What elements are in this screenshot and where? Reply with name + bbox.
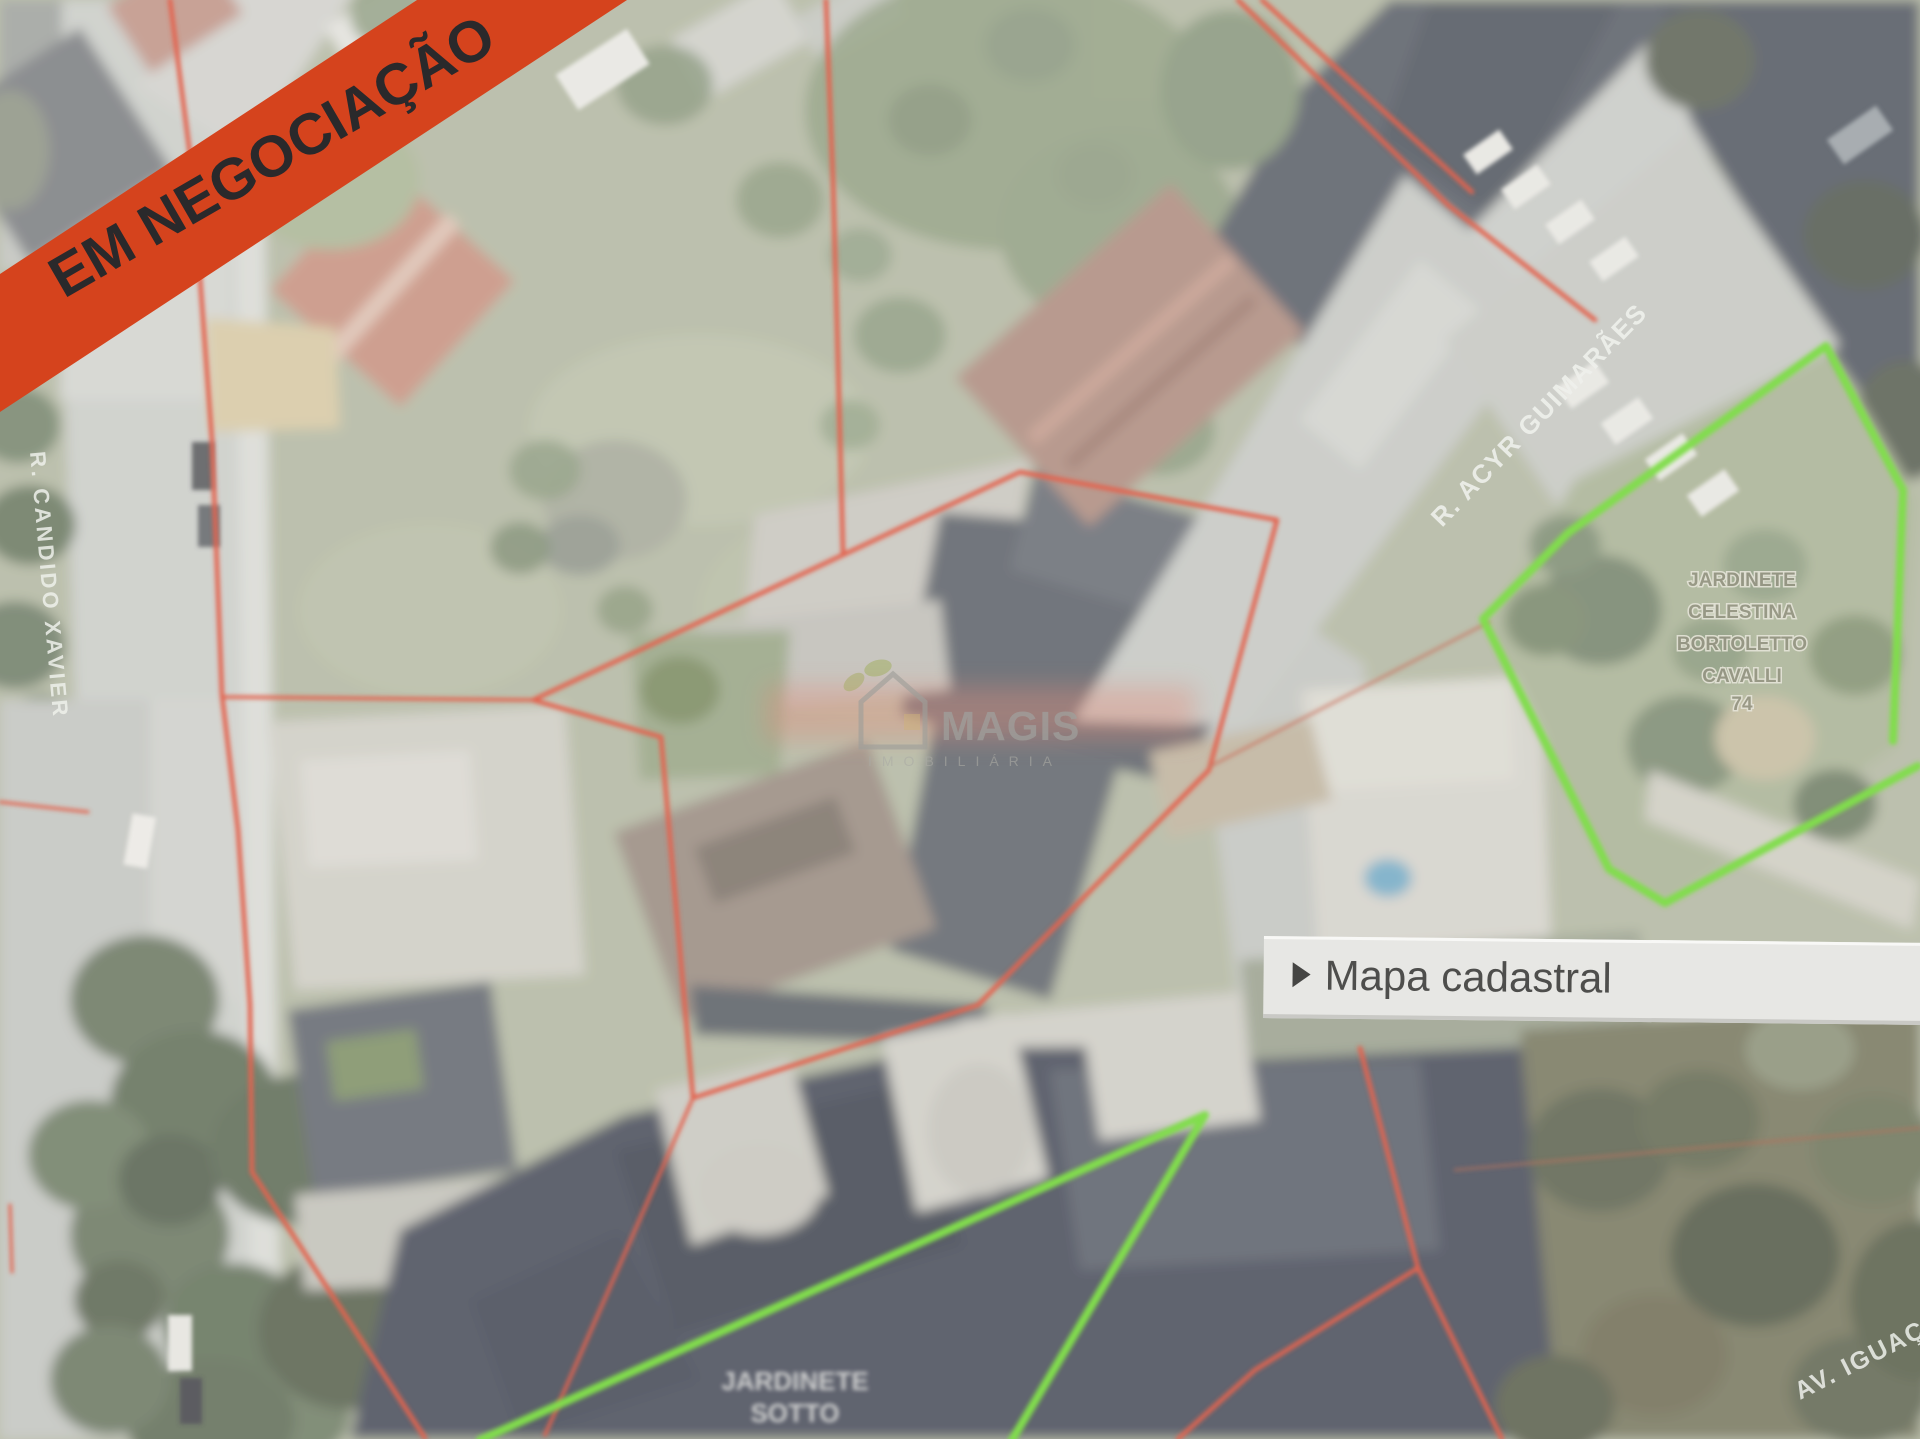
svg-text:Mapa cadastral: Mapa cadastral (1324, 952, 1612, 1002)
